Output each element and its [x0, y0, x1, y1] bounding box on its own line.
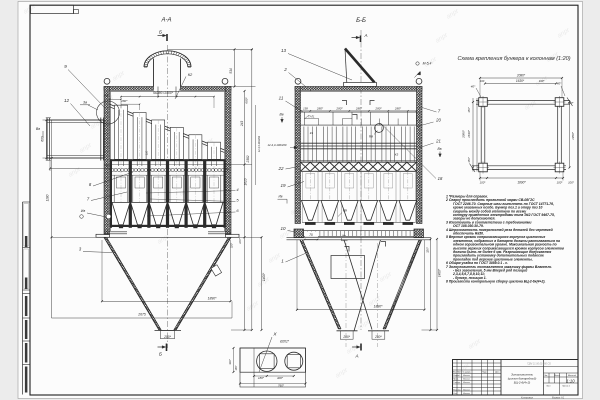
svg-text:К2: К2: [188, 72, 193, 77]
svg-text:2382: 2382: [246, 155, 250, 163]
svg-text:Иванов: Иванов: [463, 379, 470, 381]
svg-text:Лист: Лист: [546, 386, 550, 388]
svg-text:Подп.: Подп.: [482, 372, 487, 374]
svg-text:19: 19: [280, 183, 286, 188]
svg-text:200*: 200*: [374, 335, 382, 339]
svg-text:750*: 750*: [104, 164, 112, 168]
svg-text:К1: К1: [310, 131, 314, 135]
svg-text:Иванов: Иванов: [463, 390, 470, 392]
svg-text:Н.контр.: Н.контр.: [453, 390, 461, 392]
svg-text:1950*: 1950*: [571, 131, 575, 140]
svg-text:М-5,4: М-5,4: [423, 62, 432, 66]
svg-text:158: 158: [303, 106, 308, 110]
svg-text:1890*: 1890*: [374, 305, 384, 309]
svg-text:21: 21: [435, 139, 441, 144]
svg-text:110: 110: [145, 150, 149, 155]
svg-text:200*: 200*: [342, 335, 350, 339]
svg-text:Т.контр.: Т.контр.: [453, 382, 461, 384]
svg-text:10: 10: [280, 226, 286, 231]
svg-text:Б-Б: Б-Б: [356, 18, 366, 24]
svg-text:2675: 2675: [137, 313, 146, 317]
svg-text:280*: 280*: [394, 106, 402, 110]
svg-text:160*: 160*: [539, 79, 545, 83]
svg-text:280*: 280*: [316, 106, 324, 110]
svg-text:Вв: Вв: [437, 147, 441, 151]
svg-text:180*: 180*: [258, 376, 265, 380]
svg-text:200*: 200*: [163, 335, 172, 339]
svg-text:Иванов: Иванов: [463, 382, 470, 384]
svg-text:Вв: Вв: [279, 113, 283, 117]
svg-text:160: 160: [480, 79, 485, 83]
svg-text:Ив: Ив: [343, 209, 347, 213]
svg-text:5x280=1400*: 5x280=1400*: [153, 91, 174, 95]
svg-text:100*: 100*: [568, 181, 575, 185]
svg-text:100*: 100*: [557, 181, 564, 185]
svg-text:Масштаб: Масштаб: [568, 375, 576, 377]
svg-text:1630*: 1630*: [467, 129, 471, 138]
svg-text:11: 11: [279, 96, 284, 101]
svg-text:1620: 1620: [244, 178, 248, 185]
svg-text:1890*: 1890*: [517, 181, 526, 185]
svg-text:600*: 600*: [245, 97, 249, 104]
svg-text:280*: 280*: [374, 106, 382, 110]
svg-text:А: А: [363, 33, 367, 38]
svg-text:1890*: 1890*: [208, 297, 218, 301]
svg-text:Ø202*: Ø202*: [279, 340, 290, 344]
svg-text:Масса: Масса: [554, 375, 561, 377]
svg-text:А-А: А-А: [160, 18, 171, 24]
svg-text:8 Произвести контрольную сбор: 8 Произвести контрольную сборку циклона …: [446, 280, 546, 284]
svg-text:280*: 280*: [355, 106, 363, 110]
svg-text:12-4,3-100/200: 12-4,3-100/200: [268, 143, 287, 147]
svg-text:12: 12: [64, 98, 70, 103]
svg-text:760*: 760*: [278, 384, 285, 388]
svg-text:Иванов: Иванов: [463, 393, 470, 395]
svg-text:20: 20: [435, 118, 441, 123]
svg-text:Вв: Вв: [36, 127, 40, 131]
svg-text:243: 243: [240, 121, 244, 128]
svg-text:280*: 280*: [335, 106, 343, 110]
svg-text:Ив: Ив: [279, 195, 283, 199]
svg-text:13: 13: [281, 48, 287, 53]
svg-text:1400*: 1400*: [262, 272, 266, 281]
svg-text:Ив: Ив: [342, 234, 346, 238]
svg-text:Листов 1: Листов 1: [562, 386, 570, 388]
svg-text:Б: Б: [159, 30, 162, 35]
svg-text:Лист: Лист: [457, 372, 461, 374]
svg-text:Формат А1: Формат А1: [552, 397, 565, 400]
svg-text:100*: 100*: [238, 237, 242, 244]
svg-text:400*: 400*: [277, 376, 284, 380]
svg-text:Иванов: Иванов: [463, 375, 470, 377]
svg-text:А: А: [354, 354, 358, 359]
svg-text:280*: 280*: [120, 99, 128, 103]
svg-text:ТДМ 21.00.00.000 СБ: ТДМ 21.00.00.000 СБ: [527, 363, 551, 366]
svg-text:1180: 1180: [46, 194, 50, 201]
svg-text:Схема крепления бункера к коло: Схема крепления бункера к колоннам (1:20…: [457, 56, 570, 62]
svg-text:18: 18: [438, 176, 443, 181]
svg-text:534: 534: [229, 68, 233, 74]
svg-text:Ив: Ив: [81, 209, 86, 213]
svg-text:Утв.: Утв.: [453, 393, 457, 395]
svg-text:П-Л1: П-Л1: [309, 115, 316, 119]
svg-text:158: 158: [103, 94, 108, 98]
svg-text:БЦ-2-6(4+2): БЦ-2-6(4+2): [514, 381, 531, 385]
svg-text:1630*: 1630*: [516, 79, 525, 83]
svg-text:70: 70: [309, 233, 313, 237]
svg-text:180*: 180*: [235, 365, 238, 370]
svg-text:2: 2: [283, 67, 287, 72]
svg-text:Б: Б: [159, 352, 162, 357]
svg-text:3в: 3в: [83, 101, 87, 105]
svg-text:600: 600: [41, 136, 45, 142]
svg-text:100*: 100*: [480, 181, 487, 185]
svg-text:Пров.: Пров.: [453, 379, 459, 381]
svg-text:320*: 320*: [425, 246, 429, 253]
svg-text:Разраб.: Разраб.: [453, 375, 461, 377]
svg-text:Лит.: Лит.: [544, 375, 548, 377]
svg-text:2080*: 2080*: [516, 73, 526, 77]
svg-text:2080*: 2080*: [461, 129, 465, 139]
svg-text:№ докум.: № докум.: [463, 371, 472, 374]
svg-text:К3: К3: [395, 153, 399, 157]
svg-text:1400*: 1400*: [437, 268, 441, 277]
svg-text:1:10: 1:10: [566, 378, 575, 383]
svg-text:22: 22: [277, 166, 284, 171]
svg-text:12-4,3-100/200: 12-4,3-100/200: [258, 135, 261, 152]
svg-text:Копировал: Копировал: [521, 397, 534, 400]
